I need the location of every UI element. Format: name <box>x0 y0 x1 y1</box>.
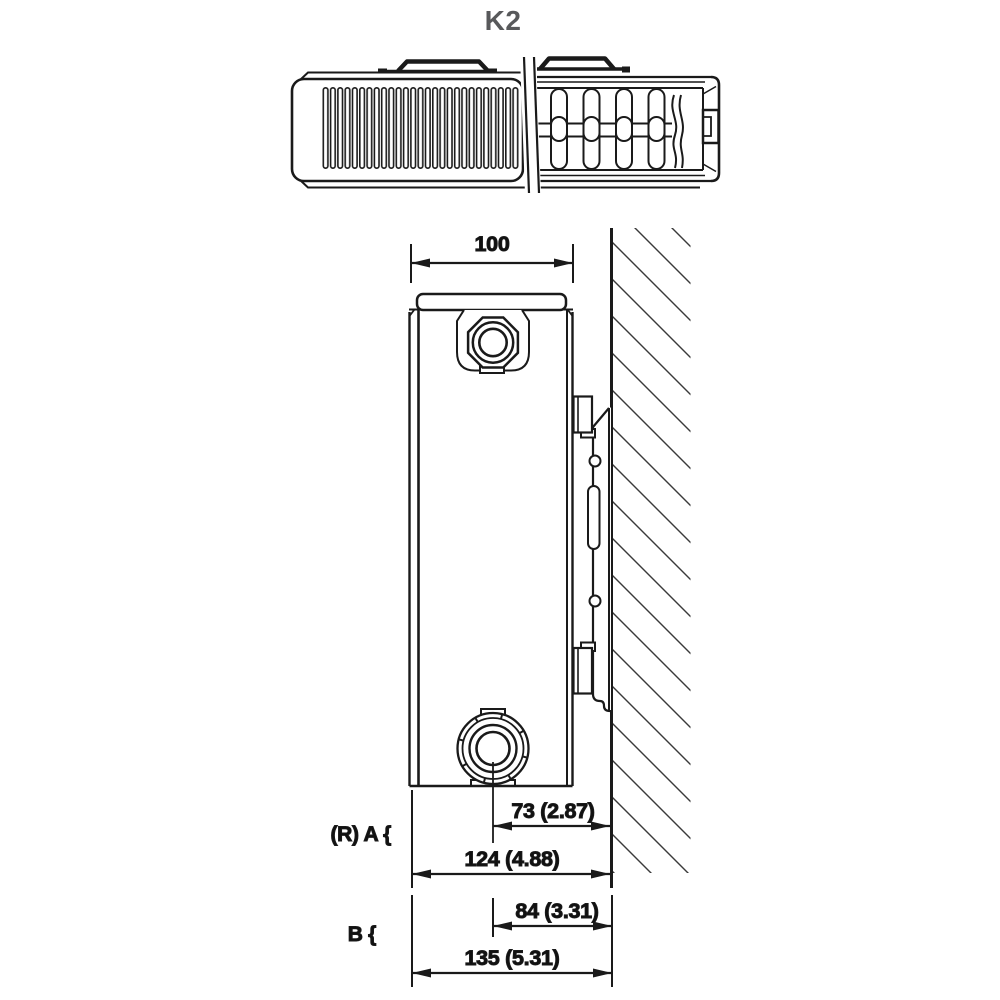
drawing-title: K2 <box>485 5 522 36</box>
dim-pipe-wall-b-text: 84 (3.31) <box>515 899 598 923</box>
wall-hatching <box>613 228 691 873</box>
bracket-hole-lower <box>590 596 601 607</box>
radiator-technical-drawing: K2 <box>0 0 1000 1000</box>
top-view-grille-section <box>292 79 523 181</box>
bracket-top-hook <box>574 397 596 438</box>
dim-depth-text: 100 <box>475 232 510 256</box>
wall <box>612 228 691 888</box>
top-cap <box>417 294 566 310</box>
dim-front-wall-a-text: 124 (4.88) <box>464 847 559 871</box>
bracket-bottom-hook <box>574 643 596 694</box>
label-group-b: B { <box>348 923 376 946</box>
technical-drawing-page: K2 <box>0 0 1000 1000</box>
bracket-slot <box>588 486 600 549</box>
top-plug <box>457 310 529 373</box>
dim-pipe-wall-a: 73 (2.87) <box>493 799 610 831</box>
label-group-a: (R) A { <box>330 823 391 846</box>
grille-slats <box>322 87 519 169</box>
dim-pipe-wall-a-text: 73 (2.87) <box>511 799 594 823</box>
top-view-end-clip <box>703 110 719 143</box>
dim-front-wall-b-text: 135 (5.31) <box>464 946 559 970</box>
bracket-hole-upper <box>590 456 601 467</box>
